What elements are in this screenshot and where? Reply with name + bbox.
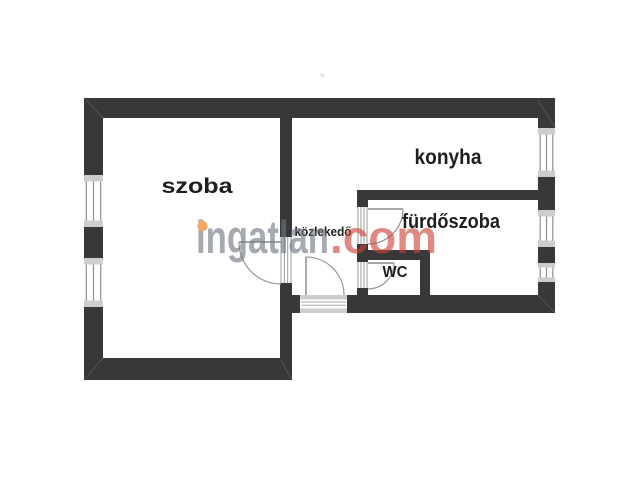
threshold-edge	[300, 295, 347, 300]
wall-top	[84, 98, 555, 118]
room-label-szoba: szoba	[162, 175, 233, 198]
window-symbol-right-kitchen	[538, 128, 555, 177]
window-sill	[84, 175, 103, 182]
window-sill	[84, 221, 103, 228]
window-sill	[538, 128, 555, 135]
watermark-suffix-text: .com	[330, 211, 437, 263]
wall-left	[84, 98, 103, 380]
room-label-konyha: konyha	[415, 146, 482, 169]
watermark-brand-text: ingatlan	[196, 211, 329, 263]
window-sill	[538, 241, 555, 248]
window-symbol-right-bathroom	[538, 210, 555, 247]
watermark-i-dot	[197, 221, 207, 231]
threshold-edge	[300, 309, 347, 314]
window-sill	[84, 301, 103, 308]
window-symbol-left-lower	[84, 258, 103, 307]
watermark-logo: ingatlan .com	[196, 211, 437, 263]
room-label-wc: WC	[383, 264, 408, 281]
floorplan-canvas: szoba konyha fürdőszoba WC közlekedő ing…	[0, 0, 640, 480]
wall-bottom-szoba	[84, 358, 292, 380]
window-sill	[84, 258, 103, 265]
floorplan-page: szoba konyha fürdőszoba WC közlekedő ing…	[0, 0, 640, 480]
wall-kitchen-bathroom	[357, 190, 538, 200]
window-sill	[538, 263, 555, 268]
stray-mark	[321, 74, 325, 78]
window-symbol-left-upper	[84, 175, 103, 227]
window-sill	[538, 171, 555, 178]
window-sill	[538, 210, 555, 217]
window-sill	[538, 278, 555, 283]
window-symbol-right-small	[538, 263, 555, 282]
door-opening	[357, 262, 368, 288]
